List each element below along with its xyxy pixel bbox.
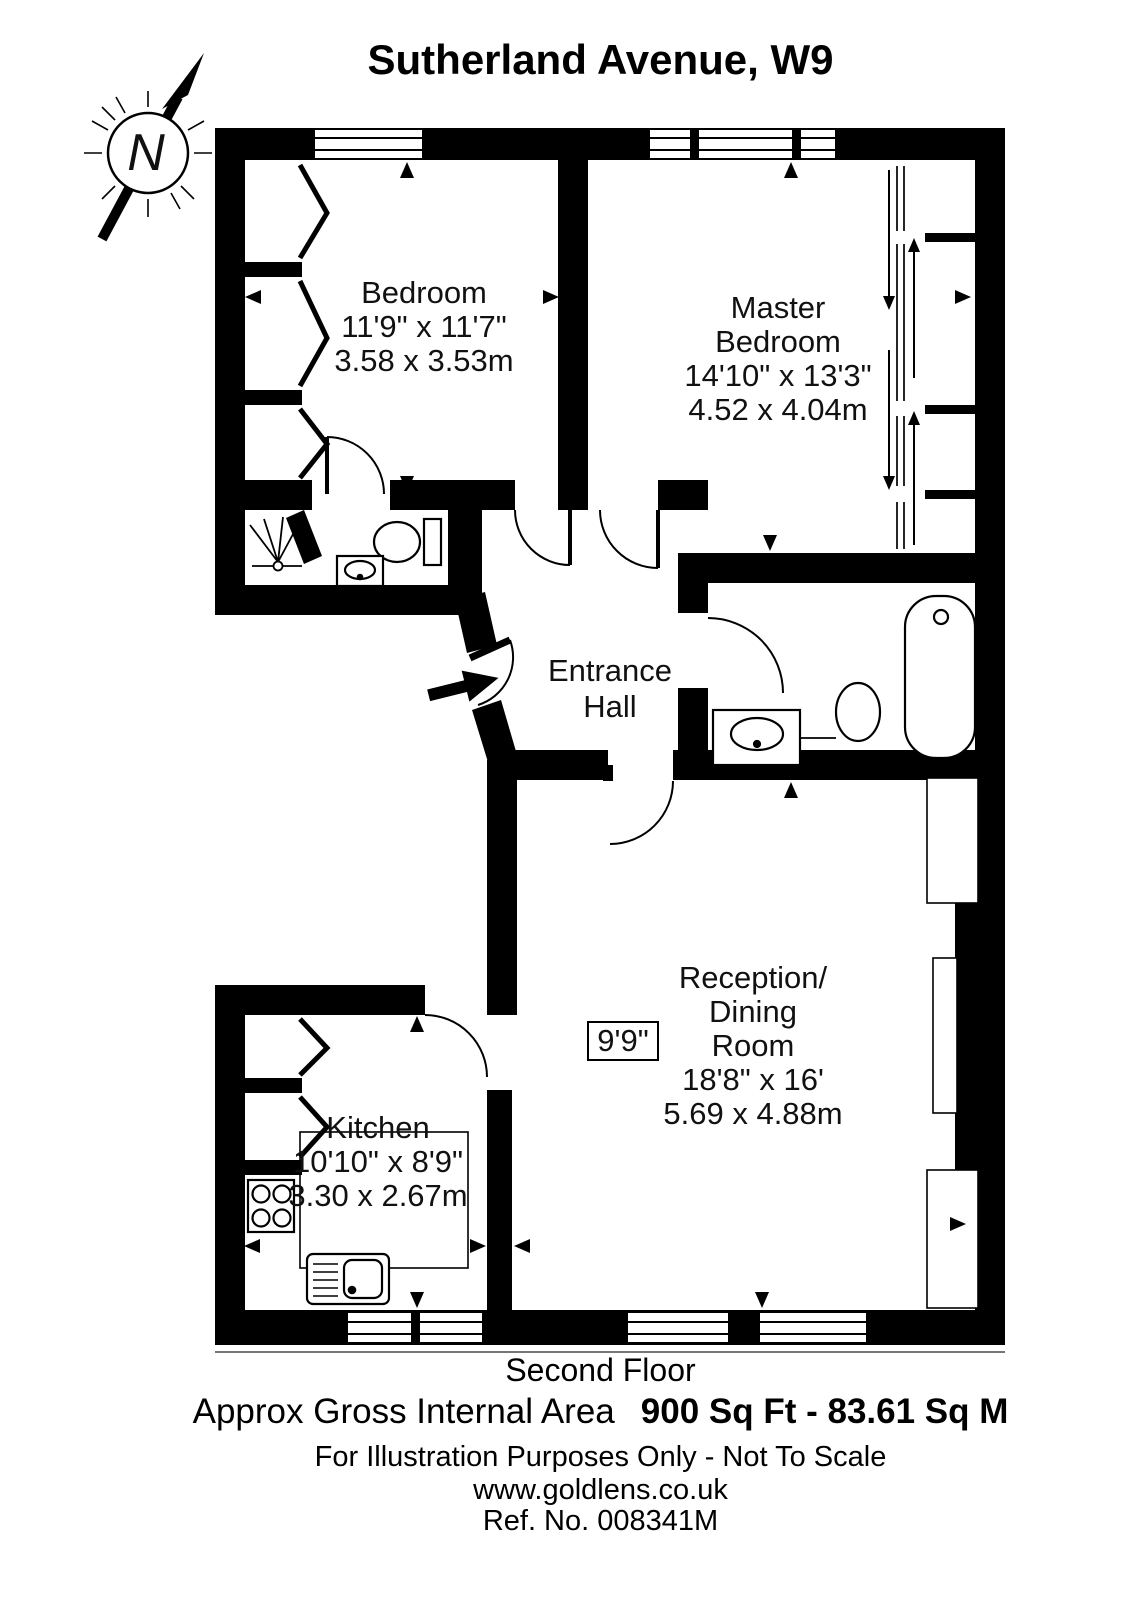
bathroom-sink-icon: [713, 710, 800, 765]
master-bedroom-label-2: Bedroom: [715, 324, 841, 359]
area-label: Approx Gross Internal Area: [193, 1392, 615, 1432]
master-bedroom-label-1: Master: [731, 290, 826, 325]
north-compass: N: [84, 53, 212, 239]
hob-icon: [248, 1180, 294, 1232]
kitchen-door: [425, 1015, 487, 1077]
bedroom-label: Bedroom: [361, 275, 487, 310]
wc-sink-icon: [337, 556, 383, 586]
reception-label-1: Reception/: [679, 960, 828, 995]
floor-name: Second Floor: [70, 1352, 1131, 1389]
bedroom-dims-metric: 3.58 x 3.53m: [334, 343, 513, 378]
reception-window-2: [760, 1313, 866, 1342]
wardrobe-sliding-doors: [897, 166, 904, 549]
reception-label-3: Room: [712, 1028, 795, 1063]
shower-room-door: [327, 437, 384, 494]
bedroom-door: [515, 510, 570, 565]
kitchen-dims-metric: 3.30 x 2.67m: [288, 1178, 467, 1213]
bedroom-dims-imperial: 11'9" x 11'7": [341, 309, 506, 344]
kitchen-sink-icon: [307, 1254, 389, 1304]
bedroom-window: [315, 130, 422, 158]
bathroom-door: [708, 618, 783, 693]
area-value: 900 Sq Ft - 83.61 Sq M: [641, 1392, 1009, 1432]
master-bedroom-dims-imperial: 14'10" x 13'3": [684, 358, 871, 393]
reception-door: [603, 765, 673, 844]
master-bedroom-door: [600, 510, 658, 568]
area-summary: Approx Gross Internal Area 900 Sq Ft - 8…: [70, 1392, 1131, 1432]
master-window: [650, 130, 835, 158]
reception-dims-imperial: 18'8" x 16': [682, 1062, 824, 1097]
master-bedroom-dims-metric: 4.52 x 4.04m: [688, 392, 867, 427]
ceiling-height-value: 9'9": [597, 1023, 648, 1058]
floorplan-page: Sutherland Avenue, W9: [0, 0, 1131, 1600]
website-text: www.goldlens.co.uk: [70, 1474, 1131, 1507]
reception-label-2: Dining: [709, 994, 797, 1029]
kitchen-closet-doors: [300, 1019, 327, 1157]
compass-arrowhead: [162, 53, 204, 109]
reception-window-1: [628, 1313, 728, 1342]
reference-number: Ref. No. 008341M: [70, 1505, 1131, 1538]
entrance-hall-label-2: Hall: [583, 689, 636, 724]
bedroom-closet-doors: [300, 165, 327, 478]
reception-dims-metric: 5.69 x 4.88m: [663, 1096, 842, 1131]
entrance-hall-label-1: Entrance: [548, 653, 672, 688]
wardrobe-slide-arrows: [883, 170, 920, 545]
kitchen-dims-imperial: 10'10" x 8'9": [293, 1144, 463, 1179]
disclaimer-text: For Illustration Purposes Only - Not To …: [70, 1441, 1131, 1474]
kitchen-window: [348, 1313, 482, 1342]
bathtub-icon: [905, 596, 975, 758]
kitchen-label: Kitchen: [326, 1110, 429, 1145]
compass-north-label: N: [127, 124, 165, 182]
bathroom-toilet-icon: [800, 683, 880, 741]
